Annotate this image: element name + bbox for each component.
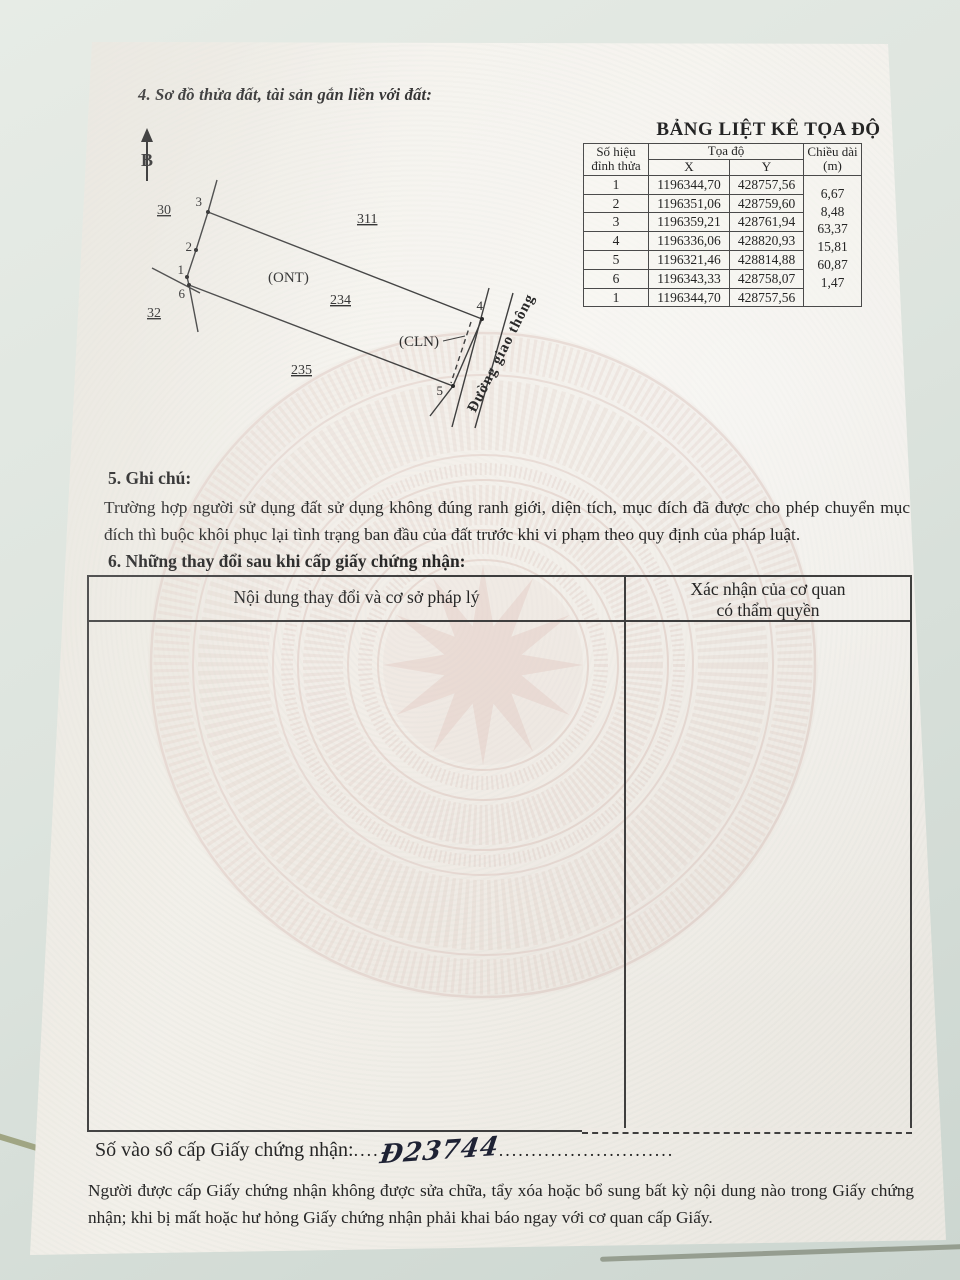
length-value: 60,87 [804, 256, 861, 274]
length-value: 15,81 [804, 238, 861, 256]
cell-y: 428814,88 [730, 251, 804, 270]
plot-sketch: 30 311 32 234 235 (ONT) (CLN) 3 2 1 6 4 … [130, 160, 580, 482]
boundary-extension-top [208, 180, 217, 212]
col-header-x: X [649, 159, 730, 175]
section5-heading: 5. Ghi chú: [108, 468, 191, 489]
cell-vertex: 3 [584, 213, 649, 232]
cell-vertex: 1 [584, 288, 649, 307]
section6-heading: 6. Những thay đổi sau khi cấp giấy chứng… [108, 551, 466, 572]
serial-handwritten-value: Đ23744 [378, 1132, 501, 1171]
adjacent-plot-235: 235 [291, 363, 312, 378]
cell-y: 428757,56 [730, 288, 804, 307]
col-header-length: Chiều dài (m) [804, 144, 862, 176]
vertex-label-5: 5 [437, 383, 444, 398]
col-header-vertex: Số hiệu đỉnh thửa [584, 144, 649, 176]
vertex-label-2: 2 [186, 239, 193, 254]
coordinate-table: Số hiệu đỉnh thửa Tọa độ Chiều dài (m) X… [583, 143, 862, 307]
photo-background: 4. Sơ đồ thửa đất, tài sản gắn liền với … [0, 0, 960, 1280]
cell-vertex: 4 [584, 232, 649, 251]
vertex-label-3: 3 [196, 194, 203, 209]
table-row: 1 1196344,70 428757,56 6,67 8,48 63,37 1… [584, 175, 862, 194]
coord-table-title: BẢNG LIỆT KÊ TỌA ĐỘ [626, 119, 911, 141]
cell-y: 428761,94 [730, 213, 804, 232]
cell-x: 1196359,21 [649, 213, 730, 232]
cell-x: 1196351,06 [649, 194, 730, 213]
changes-col-confirm-text: Xác nhận của cơ quan có thẩm quyền [683, 579, 853, 622]
cln-leader-line [443, 336, 465, 341]
col-header-y: Y [730, 159, 804, 175]
changes-table: Nội dung thay đổi và cơ sở pháp lý Xác n… [87, 575, 912, 1132]
table-column-divider [624, 577, 626, 1130]
cell-vertex: 1 [584, 175, 649, 194]
vertex-label-4: 4 [477, 298, 484, 313]
length-value: 6,67 [804, 185, 861, 203]
land-use-ont: (ONT) [268, 270, 309, 286]
adjacent-plot-311: 311 [357, 212, 377, 227]
dotted-leader: .... [354, 1140, 380, 1160]
cell-y: 428820,93 [730, 232, 804, 251]
cross-boundary [152, 268, 200, 293]
length-value: 8,48 [804, 203, 861, 221]
cell-x: 1196336,06 [649, 232, 730, 251]
changes-col-confirm-header: Xác nhận của cơ quan có thẩm quyền [626, 579, 910, 622]
section4-heading: 4. Sơ đồ thửa đất, tài sản gắn liền với … [138, 85, 432, 105]
serial-line: Số vào sổ cấp Giấy chứng nhận:....Đ23744… [95, 1133, 674, 1163]
cell-x: 1196344,70 [649, 288, 730, 307]
floor-tile-line [600, 1243, 960, 1262]
certificate-page: 4. Sơ đồ thửa đất, tài sản gắn liền với … [30, 42, 950, 1280]
adjacent-plot-30: 30 [157, 203, 171, 218]
cell-y: 428757,56 [730, 175, 804, 194]
certificate-note: Người được cấp Giấy chứng nhận không đượ… [88, 1178, 914, 1232]
cell-lengths: 6,67 8,48 63,37 15,81 60,87 1,47 [804, 175, 862, 307]
vertex-label-1: 1 [178, 262, 185, 277]
cell-vertex: 5 [584, 251, 649, 270]
cell-x: 1196344,70 [649, 175, 730, 194]
serial-label: Số vào sổ cấp Giấy chứng nhận: [95, 1139, 354, 1161]
length-value: 1,47 [804, 274, 861, 292]
adjacent-plot-32: 32 [147, 306, 161, 321]
cell-vertex: 2 [584, 194, 649, 213]
cell-x: 1196321,46 [649, 251, 730, 270]
cell-y: 428758,07 [730, 269, 804, 288]
cell-x: 1196343,33 [649, 269, 730, 288]
vertex-label-6: 6 [179, 286, 186, 301]
dotted-leader: ........................... [499, 1140, 675, 1160]
boundary-extension-bottom [189, 285, 198, 332]
parcel-number-234: 234 [330, 293, 351, 308]
length-value: 63,37 [804, 220, 861, 238]
section5-body: Trường hợp người sử dụng đất sử dụng khô… [104, 494, 910, 549]
changes-col-content-header: Nội dung thay đổi và cơ sở pháp lý [89, 587, 624, 608]
col-header-coords: Tọa độ [649, 144, 804, 160]
land-use-cln: (CLN) [399, 334, 439, 350]
table-row: Số hiệu đỉnh thửa Tọa độ Chiều dài (m) [584, 144, 862, 160]
cell-y: 428759,60 [730, 194, 804, 213]
cell-vertex: 6 [584, 269, 649, 288]
